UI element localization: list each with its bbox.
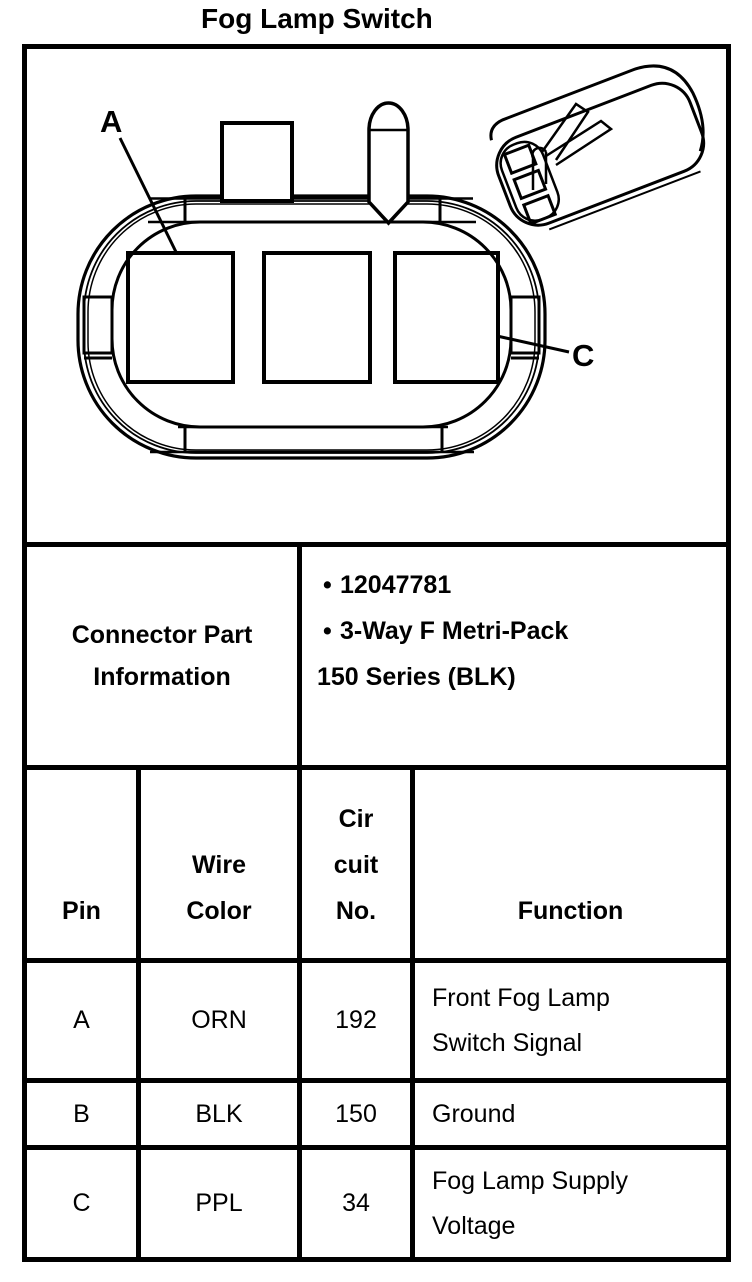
- row-c-circuit-no: 34: [302, 1150, 410, 1257]
- header-circuit-no: Cir cuit No.: [302, 770, 410, 958]
- row-c-wire-color: PPL: [141, 1150, 297, 1257]
- connector-diagram: A C: [27, 49, 726, 542]
- index-tab: [222, 123, 292, 201]
- row-b-function: Ground: [415, 1083, 726, 1145]
- connector-mid-shell: [84, 201, 539, 453]
- connector-outer-shell: [78, 196, 545, 458]
- page-title: Fog Lamp Switch: [201, 3, 433, 35]
- pin-cavity-b: [264, 253, 370, 382]
- row-b-wire-color: BLK: [141, 1083, 297, 1145]
- manual-page: Fog Lamp Switch: [0, 0, 752, 1282]
- row-a-function: Front Fog Lamp Switch Signal: [415, 963, 726, 1078]
- part-info-label-line: Connector Part: [72, 614, 253, 656]
- part-number: 12047781: [340, 562, 451, 608]
- pin-label-c: C: [572, 338, 594, 373]
- part-series-item: • 3-Way F Metri-Pack: [302, 608, 726, 654]
- header-pin: Pin: [27, 770, 136, 958]
- leader-line-c: [497, 336, 569, 352]
- row-b-pin: B: [27, 1083, 136, 1145]
- header-wire-color: Wire Color: [141, 770, 297, 958]
- pin-cavity-c: [395, 253, 498, 382]
- header-function: Function: [415, 770, 726, 958]
- row-a-pin: A: [27, 963, 136, 1078]
- row-a-wire-color: ORN: [141, 963, 297, 1078]
- row-c-pin: C: [27, 1150, 136, 1257]
- pin-cavity-a: [128, 253, 233, 382]
- part-info-label-line: Information: [93, 656, 231, 698]
- connector-3d-cavity: [504, 145, 535, 173]
- connector-3d-bottom-edge: [549, 171, 700, 229]
- connector-3d-cavity: [514, 170, 545, 198]
- bullet-icon: •: [302, 562, 340, 608]
- part-series: 3-Way F Metri-Pack: [340, 608, 568, 654]
- connector-figure-table: A C Connector Part Information • 1204778…: [22, 44, 731, 1262]
- row-a-circuit-no: 192: [302, 963, 410, 1078]
- connector-3d-view: [480, 53, 720, 240]
- part-info-label-cell: Connector Part Information: [27, 547, 297, 765]
- connector-3d-cavity: [524, 196, 555, 224]
- part-number-item: • 12047781: [302, 562, 726, 608]
- row-b-circuit-no: 150: [302, 1083, 410, 1145]
- pin-label-a: A: [100, 104, 122, 139]
- row-c-function: Fog Lamp Supply Voltage: [415, 1150, 726, 1257]
- bullet-icon: •: [302, 608, 340, 654]
- part-series-continuation: 150 Series (BLK): [317, 654, 726, 700]
- lock-pin: [369, 103, 408, 223]
- leader-line-a: [120, 138, 177, 254]
- part-info-value-cell: • 12047781 • 3-Way F Metri-Pack 150 Seri…: [302, 547, 726, 765]
